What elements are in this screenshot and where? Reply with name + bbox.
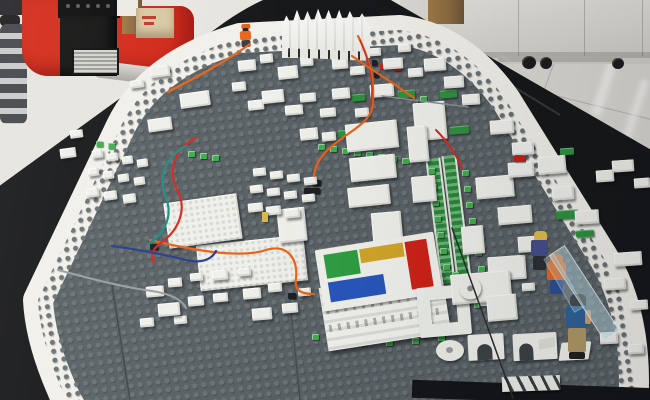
- lego-building: [604, 277, 627, 291]
- lego-building: [322, 131, 337, 141]
- green-stud: [402, 158, 409, 164]
- lego-building: [130, 79, 145, 89]
- green-stud: [108, 143, 115, 149]
- lego-large-building: [163, 193, 243, 249]
- lego-building: [298, 287, 312, 296]
- lego-building: [253, 167, 267, 176]
- city-layer: [0, 0, 650, 400]
- lego-building: [350, 65, 366, 75]
- round-wheel-piece: [436, 340, 464, 361]
- arch-opening: [519, 343, 534, 361]
- wire-connector: [150, 244, 158, 250]
- lego-building: [70, 129, 84, 139]
- lego-building: [596, 169, 615, 182]
- green-stud: [420, 96, 427, 102]
- roof-red-block: [404, 239, 433, 290]
- roof-yellow-block: [359, 242, 405, 263]
- lego-building: [497, 205, 532, 226]
- lego-building: [444, 75, 465, 88]
- lego-building: [277, 65, 298, 80]
- lego-building: [551, 185, 574, 201]
- lego-building: [117, 173, 129, 182]
- lego-building: [59, 147, 76, 159]
- bird-pedestal: [508, 161, 535, 178]
- cylinder-building: [449, 263, 524, 331]
- lego-building: [398, 44, 412, 53]
- lego-building: [320, 107, 337, 117]
- arrow-marked-strip: [502, 375, 560, 392]
- lego-building: [355, 107, 370, 117]
- wheel-piece-hole: [446, 347, 453, 353]
- lego-building: [512, 141, 535, 156]
- lego-building: [332, 87, 351, 100]
- lego-building: [461, 225, 485, 255]
- lego-building: [284, 190, 298, 199]
- lego-building: [232, 81, 247, 91]
- worker-torso: [240, 31, 252, 41]
- lego-building: [188, 295, 205, 306]
- green-stud: [212, 155, 219, 161]
- lego-building: [406, 125, 429, 163]
- lego-building: [630, 299, 649, 310]
- green-stud: [469, 218, 476, 224]
- dark-shoes: [569, 352, 585, 359]
- lego-building: [243, 287, 262, 300]
- lego-large-building: [196, 234, 308, 291]
- tan-legs: [568, 328, 586, 352]
- green-stud: [200, 153, 207, 159]
- lego-building: [612, 159, 635, 173]
- green-plate: [440, 89, 458, 98]
- blond-torso: [531, 240, 548, 256]
- lego-building: [302, 193, 316, 202]
- arch-piece: [467, 333, 504, 361]
- wire-connector: [288, 293, 296, 299]
- lego-building: [122, 193, 136, 204]
- lego-building: [261, 89, 284, 104]
- green-stud: [434, 216, 441, 222]
- lego-building: [475, 174, 515, 199]
- arch-opening: [477, 344, 493, 361]
- yellow-roof-piece: [262, 212, 268, 222]
- roof-blue-block: [328, 274, 386, 303]
- lego-building: [213, 292, 229, 302]
- lego-building: [267, 187, 281, 196]
- green-stud: [464, 186, 471, 192]
- lego-building: [174, 315, 188, 324]
- lego-building: [270, 170, 284, 179]
- green-stud: [188, 151, 195, 157]
- lego-building: [268, 282, 283, 292]
- green-stud: [96, 141, 103, 147]
- lego-building: [300, 92, 317, 102]
- lego-building: [490, 119, 515, 135]
- green-stud: [318, 144, 325, 150]
- lego-building: [537, 155, 566, 175]
- green-stud: [312, 334, 319, 340]
- lego-building: [85, 187, 99, 198]
- lego-building: [614, 251, 643, 267]
- lego-building: [121, 155, 133, 164]
- lego-building: [287, 173, 301, 182]
- green-stud: [330, 146, 337, 152]
- worker-legs: [241, 40, 250, 48]
- lego-building: [238, 267, 252, 276]
- lego-building: [102, 170, 114, 179]
- green-plate: [450, 125, 470, 135]
- lego-building: [252, 307, 273, 321]
- lego-building: [282, 302, 299, 313]
- lego-building: [168, 277, 183, 287]
- arch-slope: [539, 337, 555, 350]
- lego-building: [133, 176, 145, 185]
- green-plate: [576, 229, 594, 237]
- photo-lego-city-scene: [0, 0, 650, 400]
- lego-building: [106, 152, 118, 161]
- lego-building: [285, 208, 301, 219]
- wire-connector: [372, 60, 377, 66]
- green-plate: [352, 93, 366, 101]
- lego-building: [212, 269, 229, 280]
- lego-building: [349, 154, 397, 183]
- lego-building: [179, 90, 211, 109]
- lego-building: [411, 175, 437, 203]
- green-stud: [462, 170, 469, 176]
- lego-building: [383, 57, 404, 69]
- lego-building: [522, 283, 536, 292]
- lego-building: [91, 149, 103, 158]
- lego-building: [575, 209, 600, 225]
- green-stud: [428, 168, 435, 174]
- green-stud: [466, 202, 473, 208]
- lego-building: [190, 272, 204, 281]
- lego-building: [304, 176, 318, 185]
- lego-building: [299, 127, 318, 141]
- lego-building: [628, 344, 645, 355]
- lego-building: [345, 119, 400, 152]
- lego-building: [157, 302, 180, 317]
- lego-building: [103, 190, 117, 201]
- lego-building: [369, 83, 394, 98]
- cylinder-building-wing: [486, 293, 518, 322]
- wire-connector: [374, 72, 379, 78]
- lego-building: [136, 158, 148, 167]
- lego-building: [250, 184, 264, 193]
- lego-building: [260, 53, 274, 63]
- lego-building: [424, 57, 447, 72]
- lego-building: [285, 104, 304, 116]
- lego-building: [634, 177, 650, 188]
- lego-building: [140, 317, 155, 327]
- lego-building: [237, 59, 256, 72]
- roof-green-block: [323, 250, 360, 279]
- blond-minifigure: [531, 231, 548, 271]
- lego-building: [87, 167, 99, 176]
- lego-building: [146, 285, 165, 298]
- lego-building: [408, 67, 424, 77]
- lego-building: [149, 65, 170, 79]
- lego-building: [347, 184, 391, 208]
- lego-building: [462, 93, 481, 105]
- red-bird-piece: [514, 155, 525, 162]
- green-plate: [398, 89, 416, 98]
- construction-worker-minifigure: [239, 24, 253, 49]
- arch-piece: [512, 332, 557, 361]
- lego-building: [147, 116, 173, 132]
